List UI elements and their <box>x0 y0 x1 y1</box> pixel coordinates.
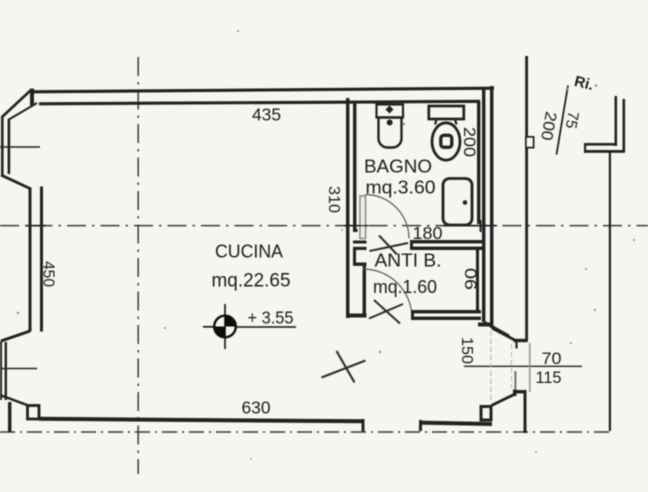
svg-text:630: 630 <box>242 398 271 418</box>
svg-text:435: 435 <box>252 105 281 125</box>
svg-text:150: 150 <box>458 337 475 364</box>
svg-text:200: 200 <box>460 127 479 157</box>
svg-text:310: 310 <box>325 186 342 213</box>
svg-text:75: 75 <box>562 110 582 130</box>
svg-text:mq.1.60: mq.1.60 <box>373 277 437 297</box>
svg-text:BAGNO: BAGNO <box>364 157 432 177</box>
svg-text:180: 180 <box>413 223 443 243</box>
svg-text:CUCINA: CUCINA <box>215 241 284 262</box>
svg-text:+ 3.55: + 3.55 <box>248 308 294 328</box>
svg-text:115: 115 <box>536 369 562 387</box>
svg-text:90: 90 <box>462 268 481 290</box>
svg-text:ANTI B.: ANTI B. <box>375 251 442 271</box>
svg-text:mq.22.65: mq.22.65 <box>212 271 291 292</box>
svg-text:70: 70 <box>542 349 562 368</box>
svg-text:450: 450 <box>40 261 57 287</box>
svg-text:mq.3.60: mq.3.60 <box>366 177 436 198</box>
